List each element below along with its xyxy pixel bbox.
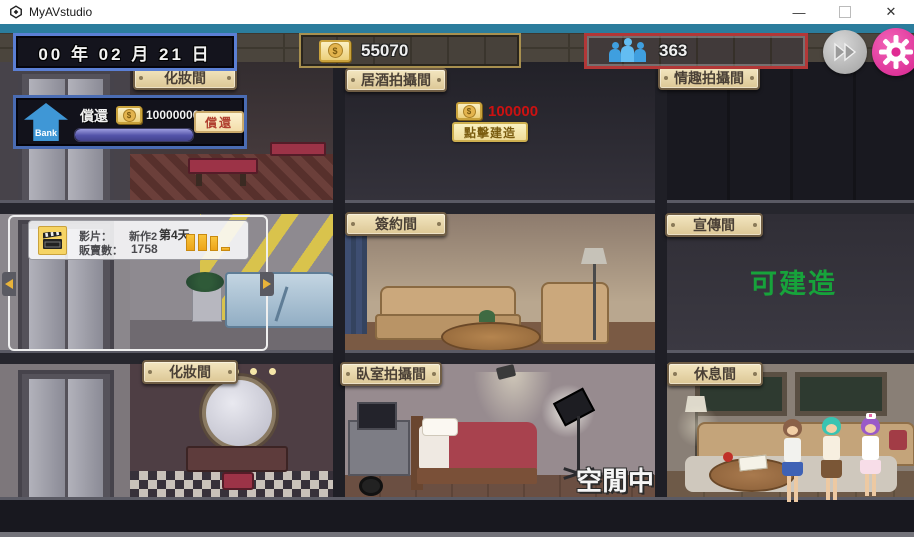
bed-base — [417, 468, 537, 484]
armchair — [541, 282, 609, 344]
selection-arrow-right[interactable] — [260, 272, 274, 296]
character-girl-nurse[interactable] — [856, 417, 884, 505]
floor-separator — [0, 200, 914, 214]
bank-panel: Bank 償還 100000000 償還 — [13, 95, 247, 149]
selection-arrow-left[interactable] — [2, 272, 16, 296]
bank-icon[interactable]: Bank — [24, 103, 68, 141]
fast-forward-button[interactable] — [823, 30, 867, 74]
ground-band — [0, 497, 914, 537]
bench — [188, 158, 258, 174]
people-icon — [609, 40, 645, 62]
wall-divider — [655, 62, 667, 497]
lamp-shade — [581, 248, 607, 264]
money-panel: 55070 — [299, 33, 521, 68]
bench-leg — [196, 174, 202, 186]
bank-icon-label: Bank — [24, 128, 68, 138]
vanity-mirror — [202, 376, 276, 450]
stool — [222, 472, 254, 490]
open-book — [738, 455, 767, 472]
fast-forward-icon — [832, 41, 858, 63]
window-titlebar: MyAVstudio — ✕ — [0, 0, 914, 24]
apple — [723, 452, 733, 462]
population-value: 363 — [659, 41, 687, 61]
room-label-makeup-f3: 化妝間 — [142, 360, 238, 384]
settings-button[interactable] — [872, 28, 914, 76]
money-icon — [456, 102, 482, 120]
population-panel: 363 — [584, 33, 808, 69]
wall-divider — [333, 62, 345, 497]
unity-logo-icon — [9, 5, 23, 19]
left-arrow-icon — [5, 279, 13, 289]
table-plant — [479, 310, 495, 322]
film-sales: 1758 — [131, 242, 158, 256]
window-title: MyAVstudio — [29, 5, 92, 19]
date-text: 00 年 02 月 21 日 — [38, 40, 211, 65]
vanity-table — [186, 446, 288, 472]
money-icon — [116, 106, 142, 124]
build-cost: 100000 — [488, 103, 538, 120]
character-girl-brown[interactable] — [778, 419, 806, 507]
repay-button[interactable]: 償還 — [194, 111, 244, 133]
sky-strip — [0, 24, 914, 33]
bench-leg — [240, 174, 246, 186]
character-girl-teal[interactable] — [817, 417, 845, 505]
film-sales-label: 販賣數： — [79, 242, 123, 258]
elevator-doors — [18, 370, 114, 497]
close-button[interactable]: ✕ — [868, 0, 914, 24]
build-cost-icon-wrap — [456, 102, 482, 120]
bank-repay-label: 償還 — [80, 106, 108, 126]
nurse-cap-icon — [866, 413, 876, 419]
blanket — [449, 422, 537, 472]
minimize-icon: — — [793, 5, 806, 20]
game-scene: 化妝間 居酒拍攝間 情趣拍攝間 簽約間 宣傳間 化妝間 臥室拍攝間 休息間 可建… — [0, 24, 914, 537]
film-info-panel: 影片： 新作2 第4天 販賣數： 1758 — [28, 220, 249, 260]
film-reel — [359, 476, 383, 496]
room-label-fetish: 情趣拍攝間 — [658, 66, 760, 90]
bank-progress-bar — [74, 128, 194, 142]
room-label-bedroom: 臥室拍攝間 — [340, 362, 442, 386]
bank-progress-fill — [75, 129, 193, 141]
monitor — [357, 402, 397, 430]
pillow — [422, 418, 458, 436]
lamp-pole — [593, 264, 596, 340]
money-value: 55070 — [361, 41, 408, 61]
sales-bars — [186, 232, 230, 251]
right-arrow-icon — [263, 279, 271, 289]
date-panel: 00 年 02 月 21 日 — [13, 33, 237, 71]
close-icon: ✕ — [886, 4, 897, 20]
room-label-izakaya: 居酒拍攝間 — [345, 68, 447, 92]
maximize-button[interactable] — [822, 0, 868, 24]
floor-separator — [0, 350, 914, 364]
buildable-text: 可建造 — [750, 262, 837, 301]
bench — [270, 142, 326, 156]
room-label-contract: 簽約間 — [345, 212, 447, 236]
money-icon — [319, 40, 351, 62]
room-label-lounge: 休息間 — [667, 362, 763, 386]
elevator-shaft-f3 — [0, 364, 130, 497]
minimize-button[interactable]: — — [776, 0, 822, 24]
window — [795, 372, 887, 416]
maximize-icon — [839, 6, 851, 18]
idle-text: 空閒中 — [576, 461, 654, 498]
clapperboard-icon — [38, 226, 67, 255]
ground-line — [0, 532, 914, 537]
bank-money-icon-wrap — [116, 106, 142, 124]
build-button[interactable]: 點擊建造 — [452, 122, 528, 142]
gear-icon — [878, 34, 914, 70]
coffee-table — [441, 322, 541, 350]
sofa-pillow — [889, 430, 907, 450]
room-label-promo: 宣傳間 — [665, 213, 763, 237]
